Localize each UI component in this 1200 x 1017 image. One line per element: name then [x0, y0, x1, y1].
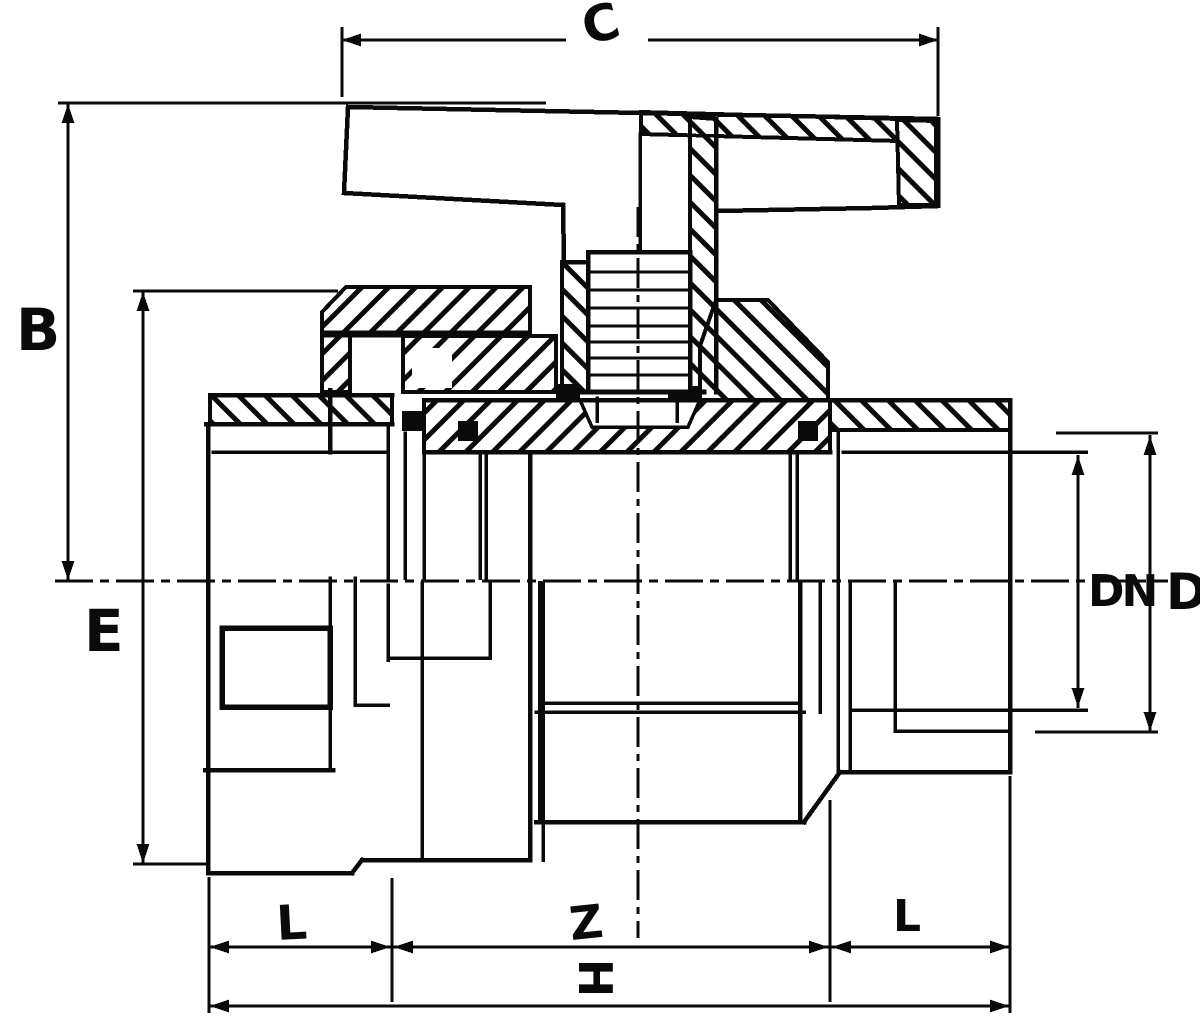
- arrow-d-up: [1144, 436, 1157, 455]
- arrow-l1-right: [371, 941, 390, 954]
- left-thread-steps: [330, 578, 388, 770]
- arrow-b-up: [62, 104, 75, 123]
- left-seat-seal: [458, 421, 478, 441]
- right-seat-seal: [798, 421, 818, 441]
- arrow-z-right: [809, 941, 828, 954]
- arrow-c-left: [342, 34, 361, 47]
- seat-left: [480, 452, 486, 578]
- label-dim-l-left: L: [275, 894, 308, 952]
- bore-bottom: [536, 703, 804, 712]
- arrow-dn-up: [1072, 456, 1085, 475]
- left-flange-hatch: [210, 395, 392, 424]
- dimension-labels: C B E DN D L Z L H: [16, 0, 1200, 997]
- label-dim-l-right: L: [893, 891, 921, 942]
- arrow-l2-right: [990, 941, 1009, 954]
- label-dim-h: H: [568, 959, 622, 998]
- label-dim-e: E: [84, 597, 124, 665]
- seat-right: [790, 452, 797, 578]
- arrow-c-right: [919, 34, 938, 47]
- union-oring-seal: [402, 411, 424, 431]
- nut-bottom: [208, 860, 530, 873]
- handle-cap-left-edge: [897, 120, 899, 205]
- gland-notch-cutout: [412, 348, 452, 388]
- drawing-canvas: C B E DN D L Z L H: [0, 0, 1200, 1017]
- gland-pocket-cutout: [352, 336, 401, 390]
- handle-end-cap-hatch: [897, 120, 936, 205]
- left-thread-block: [222, 628, 330, 707]
- label-dim-c: C: [576, 0, 626, 56]
- bonnet-right-hatch: [700, 300, 828, 400]
- bonnet-stem-left-hatch: [562, 262, 588, 392]
- arrow-l1-left: [210, 941, 229, 954]
- arrow-b-down: [62, 561, 75, 580]
- label-dim-dn: DN: [1088, 566, 1155, 617]
- nut-left-wall-hatch: [322, 334, 350, 392]
- handle-bottom-left-edge: [344, 193, 563, 205]
- arrow-h-left: [210, 1000, 229, 1013]
- label-dim-d: D: [1166, 563, 1200, 621]
- arrow-h-right: [990, 1000, 1009, 1013]
- left-end-connector: [205, 424, 490, 873]
- arrow-z-left: [394, 941, 413, 954]
- right-end-connector: [838, 400, 1086, 772]
- right-flange-hatch: [830, 400, 1010, 430]
- valve-outlines: [205, 107, 1086, 873]
- arrow-e-down: [137, 844, 150, 863]
- union-interface-lines: [388, 424, 490, 660]
- arrow-dn-down: [1072, 688, 1085, 707]
- handle-stem-channel: [563, 205, 588, 262]
- nut-collar-hatch: [322, 287, 530, 334]
- dimension-extension-lines: [58, 27, 1158, 1013]
- ball-valve-sectional-drawing: C B E DN D L Z L H: [0, 0, 1200, 1017]
- arrow-e-up: [137, 292, 150, 311]
- arrow-l2-left: [832, 941, 851, 954]
- body-chamfer-right: [804, 772, 840, 822]
- label-dim-z: Z: [567, 894, 606, 951]
- valve-body: [480, 452, 840, 822]
- dimension-arrows: [62, 34, 1157, 1013]
- label-dim-b: B: [16, 296, 60, 364]
- right-end-walls: [838, 430, 895, 772]
- arrow-d-down: [1144, 712, 1157, 731]
- dimension-lines: [68, 40, 1150, 1006]
